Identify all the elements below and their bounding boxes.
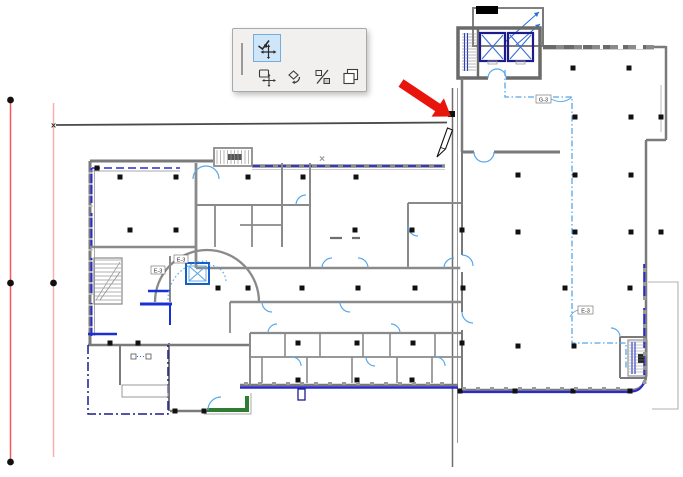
right-wing-outer-walls (458, 8, 666, 390)
pet-palette (232, 28, 367, 92)
left-wing-interior-walls (90, 163, 462, 385)
palette-tool-mirror[interactable] (311, 65, 335, 89)
right-wing: G-3 E-3 (458, 6, 678, 409)
band-x-marker[interactable]: × (319, 154, 325, 165)
mirror-icon (313, 67, 333, 87)
section-line-horizontal[interactable]: × (51, 121, 447, 131)
annotation-arrow (399, 79, 452, 116)
stair-treads (95, 34, 646, 372)
blue-partitions (88, 291, 172, 334)
stair-top-notch (214, 148, 252, 166)
furniture (122, 354, 168, 397)
left-wing-outer-walls (88, 161, 458, 411)
core-elevator (508, 33, 533, 64)
door-swings (168, 69, 620, 410)
section-line-vertical[interactable] (448, 88, 458, 467)
palette-tool-move[interactable] (255, 65, 279, 89)
palette-tool-multiply[interactable] (339, 65, 363, 89)
palette-tool-rotate[interactable] (283, 65, 307, 89)
elevator-left (186, 263, 209, 284)
multiply-icon (341, 67, 361, 87)
datum-node[interactable] (7, 459, 14, 466)
palette-tool-drag-vertex[interactable] (253, 34, 281, 62)
datum-node[interactable] (50, 280, 57, 287)
left-wing: E-3 E-3 × (88, 148, 462, 414)
drag-vertex-icon (256, 37, 278, 59)
datum-node[interactable] (7, 97, 14, 104)
rotate-icon (285, 67, 305, 87)
route-line (505, 70, 626, 370)
cad-drawing-window: × (0, 0, 683, 477)
route-label-right: E-3 (581, 308, 590, 314)
balcony-green (204, 393, 251, 414)
elevator-label: E-3 (177, 257, 186, 263)
room-label: E-3 (154, 268, 163, 274)
pencil-cursor (437, 128, 453, 157)
core (458, 28, 540, 78)
core-elevator (480, 33, 505, 64)
move-icon (257, 67, 277, 87)
structural-columns (95, 66, 664, 414)
terrace-outline (648, 282, 678, 409)
window-glazing (90, 166, 458, 400)
datum-node[interactable] (7, 280, 14, 287)
storey-outline-navy (88, 343, 168, 414)
stair-southwest (94, 258, 122, 304)
route-label-top: G-3 (539, 97, 548, 103)
right-wing-glazing (458, 264, 644, 392)
section-endpoint-x-marker[interactable]: × (51, 121, 56, 131)
palette-grip-handle[interactable] (241, 43, 243, 75)
datum-lines[interactable] (7, 97, 57, 466)
